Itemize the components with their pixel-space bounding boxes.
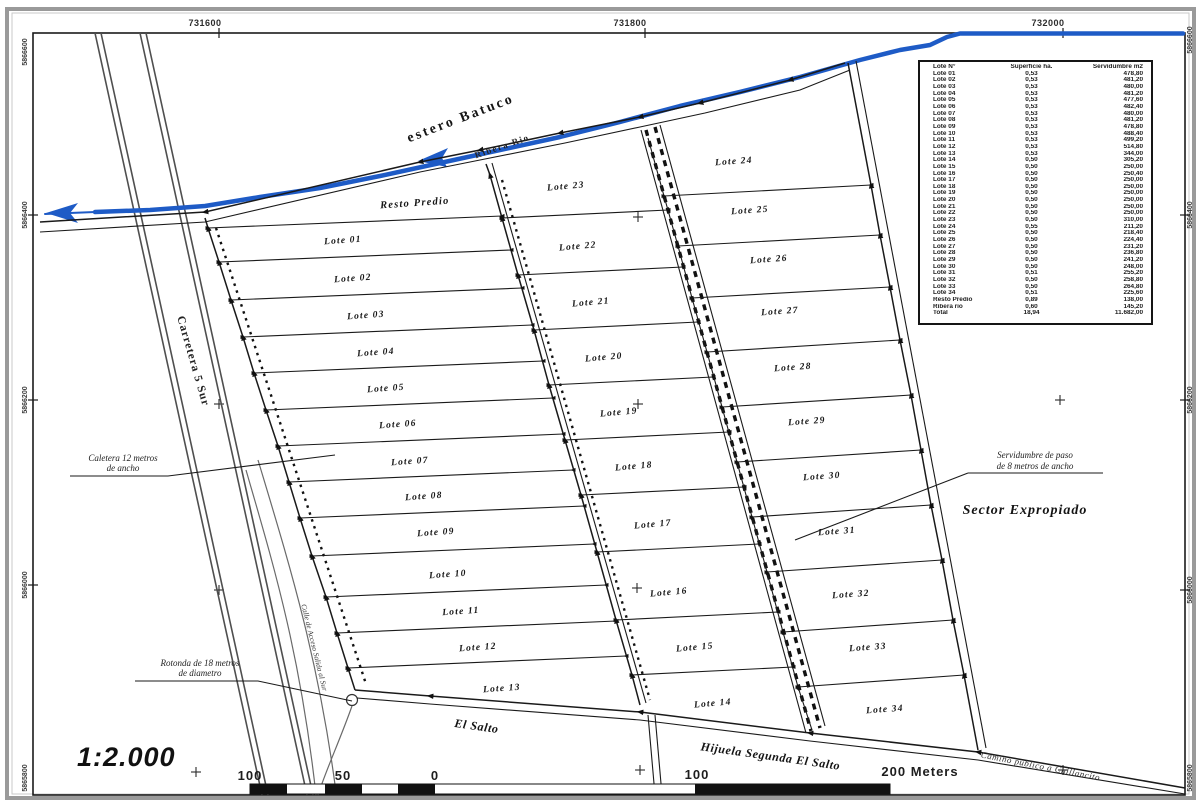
lot-label: Lote 33 xyxy=(848,642,887,655)
table-cell: 481,20 xyxy=(1067,91,1148,98)
table-cell: Lote 19 xyxy=(923,190,996,197)
table-cell: 145,20 xyxy=(1067,304,1148,311)
table-cell: 0,50 xyxy=(996,230,1068,237)
table-cell: 11.682,00 xyxy=(1067,310,1148,317)
table-cell: Ribera rio xyxy=(923,304,996,311)
table-cell: 0,50 xyxy=(996,210,1068,217)
table-cell: 480,00 xyxy=(1067,111,1148,118)
table-cell: Lote 30 xyxy=(923,264,996,271)
table-cell: 0,51 xyxy=(996,270,1068,277)
lot-label: Lote 18 xyxy=(614,460,653,473)
table-cell: 0,89 xyxy=(996,297,1068,304)
table-row: Lote 040,53481,20 xyxy=(923,91,1148,98)
table-cell: 258,80 xyxy=(1067,277,1148,284)
table-cell: 0,53 xyxy=(996,77,1068,84)
scale-bar-label: 0 xyxy=(431,768,439,783)
hijuela-segunda-label: Hijuela Segunda El Salto xyxy=(699,739,841,773)
table-cell: 0,53 xyxy=(996,131,1068,138)
table-row: Ribera rio0,60145,20 xyxy=(923,304,1148,311)
table-cell: 477,60 xyxy=(1067,97,1148,104)
table-cell: 0,50 xyxy=(996,250,1068,257)
table-header-cell: Lote N° xyxy=(923,64,996,71)
caletera-label-line2: de ancho xyxy=(107,463,140,473)
table-row: Resto Predio0,89138,00 xyxy=(923,297,1148,304)
table-row: Lote 340,51225,60 xyxy=(923,290,1148,297)
table-cell: 0,55 xyxy=(996,224,1068,231)
south-boundary xyxy=(355,690,1185,794)
table-row: Lote 180,50250,00 xyxy=(923,184,1148,191)
table-cell: 310,00 xyxy=(1067,217,1148,224)
table-cell: 0,53 xyxy=(996,117,1068,124)
table-cell: 478,80 xyxy=(1067,124,1148,131)
table-cell: Lote 20 xyxy=(923,197,996,204)
sector-expropiado-label: Sector Expropiado xyxy=(963,503,1088,518)
scale-bar-label: 100 xyxy=(685,767,710,782)
northing-label: 5866000 xyxy=(1187,576,1194,603)
table-cell: 0,50 xyxy=(996,217,1068,224)
table-cell: Lote 09 xyxy=(923,124,996,131)
lot-label: Lote 12 xyxy=(458,642,497,655)
northing-label: 5866200 xyxy=(22,386,29,413)
table-cell: 0,53 xyxy=(996,84,1068,91)
table-cell: Lote 17 xyxy=(923,177,996,184)
lot-label: Lote 08 xyxy=(404,491,443,504)
lot-label: Lote 26 xyxy=(749,254,788,267)
lot-label: Lote 32 xyxy=(831,589,870,602)
table-cell: 480,00 xyxy=(1067,84,1148,91)
servidumbre-label-line1: Servidumbre de paso xyxy=(997,450,1073,460)
table-cell: Lote 33 xyxy=(923,284,996,291)
table-row: Lote 150,50250,00 xyxy=(923,164,1148,171)
table-cell: 0,53 xyxy=(996,137,1068,144)
lot-label: Lote 01 xyxy=(323,235,362,248)
table-cell: 481,20 xyxy=(1067,117,1148,124)
easting-label: 732000 xyxy=(1031,18,1064,28)
table-cell: 0,53 xyxy=(996,97,1068,104)
table-cell: 0,53 xyxy=(996,104,1068,111)
table-cell: Lote 04 xyxy=(923,91,996,98)
lot-label: Lote 22 xyxy=(558,240,597,253)
easting-label: 731600 xyxy=(188,18,221,28)
table-cell: Lote 24 xyxy=(923,224,996,231)
table-cell: 250,00 xyxy=(1067,197,1148,204)
northing-label: 5866000 xyxy=(22,571,29,598)
northing-label: 5866400 xyxy=(1187,201,1194,228)
table-cell: 0,50 xyxy=(996,237,1068,244)
table-cell: Total xyxy=(923,310,996,317)
scale-bar-label: 50 xyxy=(335,768,351,783)
easting-label: 731800 xyxy=(613,18,646,28)
table-row: Lote 230,50310,00 xyxy=(923,217,1148,224)
table-cell: Lote 15 xyxy=(923,164,996,171)
table-cell: Lote 34 xyxy=(923,290,996,297)
table-cell: Lote 08 xyxy=(923,117,996,124)
table-cell: 482,40 xyxy=(1067,104,1148,111)
lot-label: Lote 11 xyxy=(441,606,480,619)
table-header-cell: Superficie ha. xyxy=(996,64,1068,71)
scale-bar-label: 200 Meters xyxy=(881,764,958,779)
table-cell: 344,00 xyxy=(1067,151,1148,158)
table-row: Lote 310,51255,20 xyxy=(923,270,1148,277)
calle-acceso-label: Calle de Acceso Salida al Sur xyxy=(299,603,329,692)
table-cell: 0,50 xyxy=(996,184,1068,191)
table-cell: 231,20 xyxy=(1067,244,1148,251)
table-cell: Lote 28 xyxy=(923,250,996,257)
northing-label: 5865800 xyxy=(1187,764,1194,791)
lot-surface-table: Lote N° Superficie ha. Servidumbre m2 Lo… xyxy=(923,64,1148,317)
table-row: Lote 140,50305,20 xyxy=(923,157,1148,164)
lot-label: Lote 23 xyxy=(546,180,585,193)
table-cell: Lote 18 xyxy=(923,184,996,191)
lot-label: Lote 06 xyxy=(378,419,417,432)
table-cell: Lote 29 xyxy=(923,257,996,264)
table-cell: 250,00 xyxy=(1067,164,1148,171)
table-cell: 250,40 xyxy=(1067,171,1148,178)
table-cell: 225,60 xyxy=(1067,290,1148,297)
northing-label: 5865800 xyxy=(22,764,29,791)
table-cell: 0,50 xyxy=(996,190,1068,197)
table-row: Lote 120,53514,80 xyxy=(923,144,1148,151)
table-cell: 250,00 xyxy=(1067,190,1148,197)
table-row: Lote 220,50250,00 xyxy=(923,210,1148,217)
lot-label: Lote 14 xyxy=(693,697,732,710)
table-cell: 18,94 xyxy=(996,310,1068,317)
table-cell: 250,00 xyxy=(1067,210,1148,217)
table-row: Lote 280,50236,80 xyxy=(923,250,1148,257)
table-cell: Lote 07 xyxy=(923,111,996,118)
rotonda-label-line1: Rotonda de 18 metros xyxy=(160,658,240,668)
table-cell: 0,53 xyxy=(996,71,1068,78)
lot-label: Lote 13 xyxy=(482,683,521,696)
table-cell: Lote 31 xyxy=(923,270,996,277)
table-cell: 481,20 xyxy=(1067,77,1148,84)
table-row: Lote 200,50250,00 xyxy=(923,197,1148,204)
lot-label: Lote 15 xyxy=(675,641,714,654)
lot-label: Lote 09 xyxy=(416,527,455,540)
servidumbre-label-line2: de 8 metros de ancho xyxy=(997,461,1074,471)
table-cell: 218,40 xyxy=(1067,230,1148,237)
table-row: Lote 210,50250,00 xyxy=(923,204,1148,211)
lot-label: Lote 17 xyxy=(633,518,672,531)
table-cell: 250,00 xyxy=(1067,204,1148,211)
table-header-cell: Servidumbre m2 xyxy=(1067,64,1148,71)
table-cell: 0,50 xyxy=(996,177,1068,184)
table-row: Lote 080,53481,20 xyxy=(923,117,1148,124)
table-cell: Lote 11 xyxy=(923,137,996,144)
lot-label: Lote 30 xyxy=(802,471,841,484)
table-cell: Lote 01 xyxy=(923,71,996,78)
table-cell: 250,00 xyxy=(1067,177,1148,184)
table-cell: 0,50 xyxy=(996,164,1068,171)
table-cell: Lote 26 xyxy=(923,237,996,244)
table-row: Lote 260,50224,40 xyxy=(923,237,1148,244)
table-row: Lote 090,53478,80 xyxy=(923,124,1148,131)
northing-label: 5866400 xyxy=(22,201,29,228)
table-cell: 236,80 xyxy=(1067,250,1148,257)
lot-label: Lote 07 xyxy=(390,456,429,469)
table-cell: 248,00 xyxy=(1067,264,1148,271)
table-cell: 0,50 xyxy=(996,257,1068,264)
table-row: Lote 050,53477,60 xyxy=(923,97,1148,104)
table-cell: 305,20 xyxy=(1067,157,1148,164)
table-cell: 138,00 xyxy=(1067,297,1148,304)
scale-ratio-text: 1:2.000 xyxy=(77,742,176,772)
camino-chillancito-label: Camino publico a Chillancito xyxy=(980,750,1101,783)
table-cell: 224,40 xyxy=(1067,237,1148,244)
table-cell: Lote 25 xyxy=(923,230,996,237)
resto-predio-label: Resto Predio xyxy=(379,196,450,212)
rotonda-label-line2: de diametro xyxy=(179,668,222,678)
table-row: Lote 060,53482,40 xyxy=(923,104,1148,111)
table-cell: Lote 12 xyxy=(923,144,996,151)
table-cell: 0,60 xyxy=(996,304,1068,311)
lot-label: Lote 10 xyxy=(428,569,467,582)
table-row: Lote 020,53481,20 xyxy=(923,77,1148,84)
table-cell: 250,00 xyxy=(1067,184,1148,191)
table-row: Lote 270,50231,20 xyxy=(923,244,1148,251)
lot-label: Lote 05 xyxy=(366,383,405,396)
lot-label: Lote 20 xyxy=(584,351,623,364)
lot-labels: Lote 01 Lote 02 Lote 03 Lote 04 Lote 05 … xyxy=(323,156,904,717)
table-row: Lote 250,50218,40 xyxy=(923,230,1148,237)
table-cell: 514,80 xyxy=(1067,144,1148,151)
table-cell: Lote 23 xyxy=(923,217,996,224)
estero-batuco-label: estero Batuco xyxy=(405,91,516,146)
table-cell: 0,53 xyxy=(996,151,1068,158)
table-cell: Lote 27 xyxy=(923,244,996,251)
table-cell: Resto Predio xyxy=(923,297,996,304)
table-row: Lote 070,53480,00 xyxy=(923,111,1148,118)
table-cell: 0,53 xyxy=(996,124,1068,131)
table-cell: 478,80 xyxy=(1067,71,1148,78)
table-cell: Lote 13 xyxy=(923,151,996,158)
table-cell: 0,53 xyxy=(996,111,1068,118)
table-cell: 264,80 xyxy=(1067,284,1148,291)
table-row: Lote 030,53480,00 xyxy=(923,84,1148,91)
table-cell: 0,53 xyxy=(996,91,1068,98)
northing-label: 5866600 xyxy=(1187,26,1194,53)
table-cell: 0,51 xyxy=(996,290,1068,297)
caletera-label-line1: Caletera 12 metros xyxy=(88,453,158,463)
northing-label: 5866600 xyxy=(22,38,29,65)
northing-label: 5866200 xyxy=(1187,386,1194,413)
table-row: Lote 130,53344,00 xyxy=(923,151,1148,158)
lot-label: Lote 16 xyxy=(649,586,688,599)
lot-label: Lote 04 xyxy=(356,347,395,360)
table-cell: Lote 16 xyxy=(923,171,996,178)
table-row: Total18,9411.682,00 xyxy=(923,310,1148,317)
table-row: Lote 240,55211,20 xyxy=(923,224,1148,231)
table-cell: Lote 32 xyxy=(923,277,996,284)
table-cell: Lote 14 xyxy=(923,157,996,164)
table-row: Lote 110,53499,20 xyxy=(923,137,1148,144)
table-cell: 499,20 xyxy=(1067,137,1148,144)
table-cell: 488,40 xyxy=(1067,131,1148,138)
lot-label: Lote 28 xyxy=(773,362,812,375)
lot-label: Lote 19 xyxy=(599,406,638,419)
lot-label: Lote 02 xyxy=(333,273,372,286)
table-cell: 0,50 xyxy=(996,197,1068,204)
table-cell: Lote 10 xyxy=(923,131,996,138)
table-cell: 0,50 xyxy=(996,284,1068,291)
table-cell: 241,20 xyxy=(1067,257,1148,264)
table-row: Lote 300,50248,00 xyxy=(923,264,1148,271)
table-cell: 0,50 xyxy=(996,157,1068,164)
lot-label: Lote 25 xyxy=(730,205,769,218)
table-cell: Lote 06 xyxy=(923,104,996,111)
lot-label: Lote 27 xyxy=(760,306,799,319)
lot-label: Lote 24 xyxy=(714,156,753,169)
lot-dividers xyxy=(208,185,964,687)
table-row: Lote 170,50250,00 xyxy=(923,177,1148,184)
lot-label: Lote 31 xyxy=(817,526,856,539)
table-cell: 0,50 xyxy=(996,277,1068,284)
table-cell: 255,20 xyxy=(1067,270,1148,277)
table-cell: 0,50 xyxy=(996,244,1068,251)
table-cell: 0,50 xyxy=(996,204,1068,211)
el-salto-label: El Salto xyxy=(453,716,500,736)
scale-bar-label: 100 xyxy=(238,768,263,783)
table-row: Lote 330,50264,80 xyxy=(923,284,1148,291)
survey-map-page: 731600 731800 732000 5866600 5866400 586… xyxy=(0,0,1200,800)
table-row: Lote 160,50250,40 xyxy=(923,171,1148,178)
table-cell: Lote 02 xyxy=(923,77,996,84)
table-cell: 0,50 xyxy=(996,171,1068,178)
table-row: Lote 290,50241,20 xyxy=(923,257,1148,264)
road-interior-west xyxy=(486,163,662,795)
table-cell: Lote 03 xyxy=(923,84,996,91)
table-cell: 0,53 xyxy=(996,144,1068,151)
lot-label: Lote 03 xyxy=(346,310,385,323)
table-cell: 211,20 xyxy=(1067,224,1148,231)
table-row: Lote 010,53478,80 xyxy=(923,71,1148,78)
table-row: Lote 190,50250,00 xyxy=(923,190,1148,197)
table-cell: 0,50 xyxy=(996,264,1068,271)
table-row: Lote 100,53488,40 xyxy=(923,131,1148,138)
lot-label: Lote 29 xyxy=(787,416,826,429)
table-row: Lote 320,50258,80 xyxy=(923,277,1148,284)
table-cell: Lote 22 xyxy=(923,210,996,217)
table-cell: Lote 05 xyxy=(923,97,996,104)
lot-surface-table-panel: Lote N° Superficie ha. Servidumbre m2 Lo… xyxy=(918,60,1153,325)
scale-bar: 100 50 0 100 200 Meters xyxy=(238,764,959,794)
lot-label: Lote 21 xyxy=(571,296,610,309)
table-header-row: Lote N° Superficie ha. Servidumbre m2 xyxy=(923,64,1148,71)
table-cell: Lote 21 xyxy=(923,204,996,211)
lot-label: Lote 34 xyxy=(865,704,904,717)
